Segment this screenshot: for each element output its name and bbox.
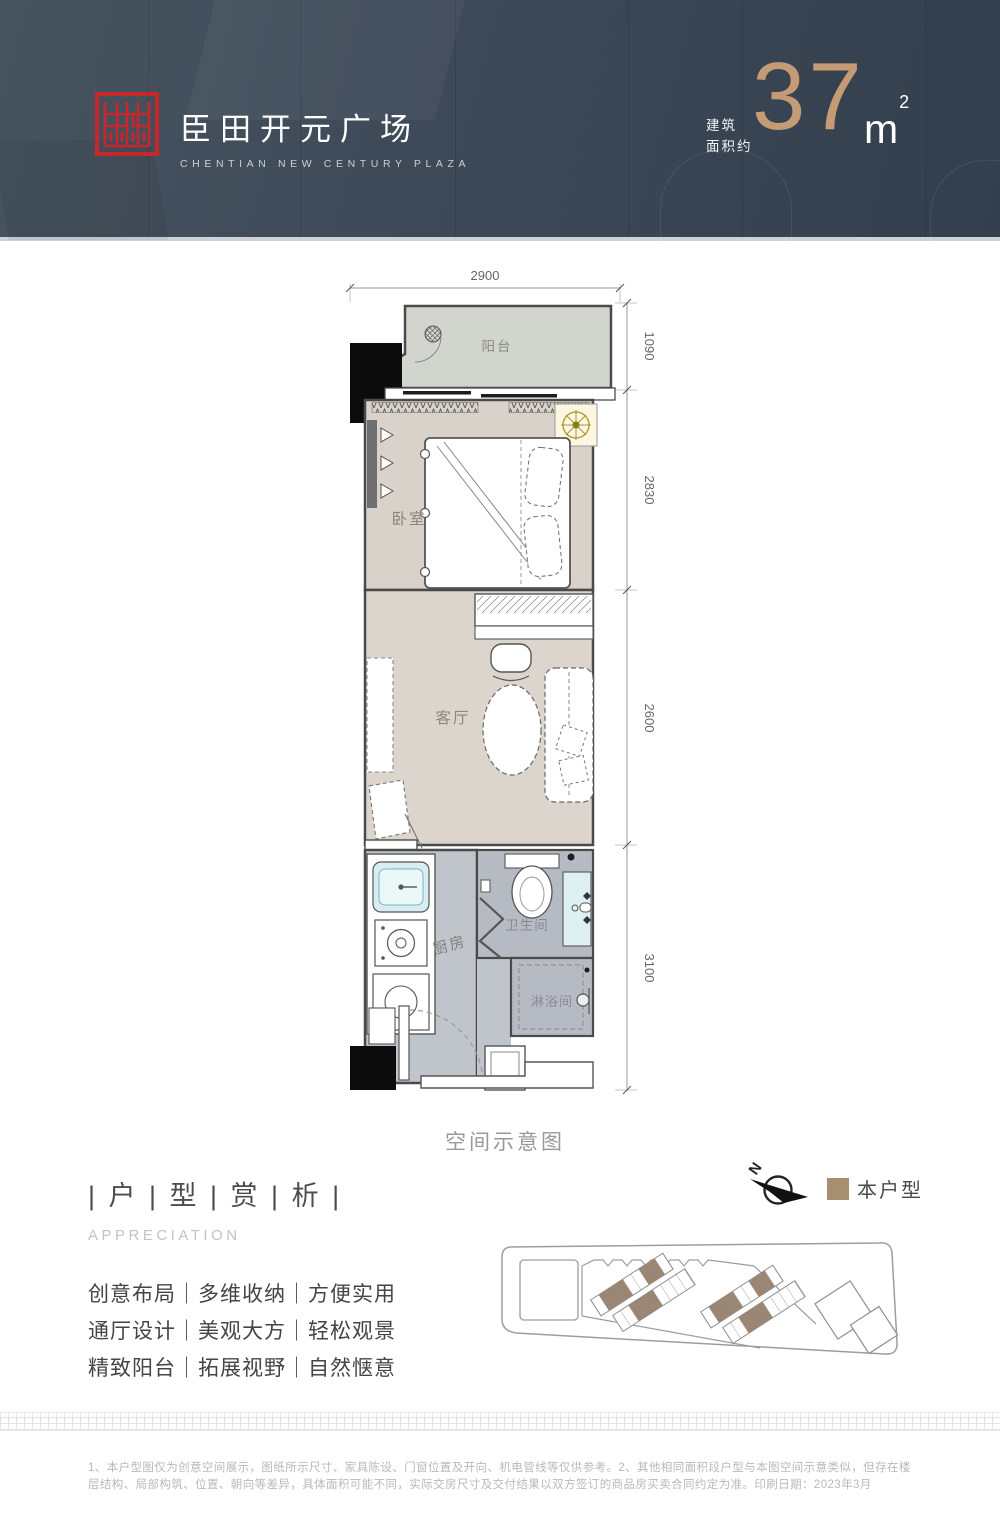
decorative-pattern-strip: [0, 1412, 1000, 1431]
header-banner: 臣田开元广场 CHENTIAN NEW CENTURY PLAZA 建筑 面积约…: [0, 0, 1000, 241]
dim-bedroom: 2830: [642, 476, 657, 505]
appreciation-title: | 户 | 型 | 赏 | 析 |: [88, 1174, 448, 1213]
compass-icon: N: [745, 1160, 808, 1204]
feature-line: 通厅设计｜美观大方｜轻松观景: [88, 1313, 448, 1350]
header-pattern: [185, 0, 465, 120]
siteplan-diagram: [492, 1232, 912, 1394]
svg-text:N: N: [745, 1160, 765, 1179]
area-label: 建筑 面积约: [706, 115, 753, 157]
site-building: [520, 1260, 578, 1320]
feature-line: 精致阳台｜拓展视野｜自然惬意: [88, 1350, 448, 1387]
disclaimer-text: 1、本户型图仅为创意空间展示，图纸所示尺寸、家具陈设、门窗位置及开向、机电管线等…: [88, 1460, 916, 1494]
feature-line: 创意布局｜多维收纳｜方便实用: [88, 1276, 448, 1313]
spotlight-icon: [425, 326, 441, 342]
window-hatch: [372, 403, 478, 413]
pillow: [523, 514, 563, 577]
structural-column: [350, 1046, 396, 1090]
room-bathroom: [477, 850, 593, 958]
sofa: [545, 668, 593, 802]
dim-width-top: 2900: [471, 268, 500, 283]
wardrobe: [367, 420, 377, 508]
floorplan-diagram: 2900 1090 2830 2600 3100: [325, 258, 685, 1123]
project-subtitle: CHENTIAN NEW CENTURY PLAZA: [180, 158, 470, 170]
sink: [373, 862, 429, 912]
room-label-living: 客厅: [435, 709, 470, 727]
brand-seal-icon: [95, 92, 159, 156]
table: [483, 685, 541, 775]
vanity-sink: [563, 872, 591, 946]
header-pattern: [925, 0, 926, 237]
appreciation-section: | 户 | 型 | 赏 | 析 | APPRECIATION 创意布局｜多维收纳…: [88, 1174, 448, 1387]
room-label-shower: 淋浴间: [531, 994, 573, 1009]
stove: [375, 920, 427, 966]
header-pattern: [930, 160, 1000, 241]
cabinet: [367, 658, 393, 772]
appreciation-subtitle: APPRECIATION: [88, 1227, 448, 1244]
room-bedroom: [365, 400, 597, 590]
dim-kitchen: 3100: [642, 954, 657, 983]
project-title: 臣田开元广场: [180, 104, 470, 149]
area-value: 37: [752, 47, 865, 148]
room-label-bathroom: 卫生间: [505, 918, 549, 933]
header-pattern: [628, 0, 629, 237]
bed: [421, 438, 571, 588]
wall: [365, 840, 417, 850]
area-unit: m2: [864, 106, 908, 153]
legend-label: 本户型: [857, 1179, 923, 1202]
room-label-bedroom: 卧室: [391, 510, 426, 528]
shower-head-icon: [577, 994, 589, 1006]
cushion: [559, 756, 589, 786]
desk: [475, 594, 593, 639]
header-pattern: [660, 150, 792, 241]
balcony-door: [385, 388, 615, 400]
plan-caption: 空间示意图: [325, 1126, 685, 1156]
room-label-balcony: 阳台: [482, 339, 513, 354]
shoe-cabinet: [369, 1008, 395, 1044]
legend-swatch: [827, 1178, 849, 1200]
room-living: [365, 590, 593, 848]
dim-living: 2600: [642, 704, 657, 733]
dim-balcony: 1090: [642, 332, 657, 361]
pillow: [524, 446, 565, 508]
legend: N 本户型: [730, 1150, 940, 1218]
